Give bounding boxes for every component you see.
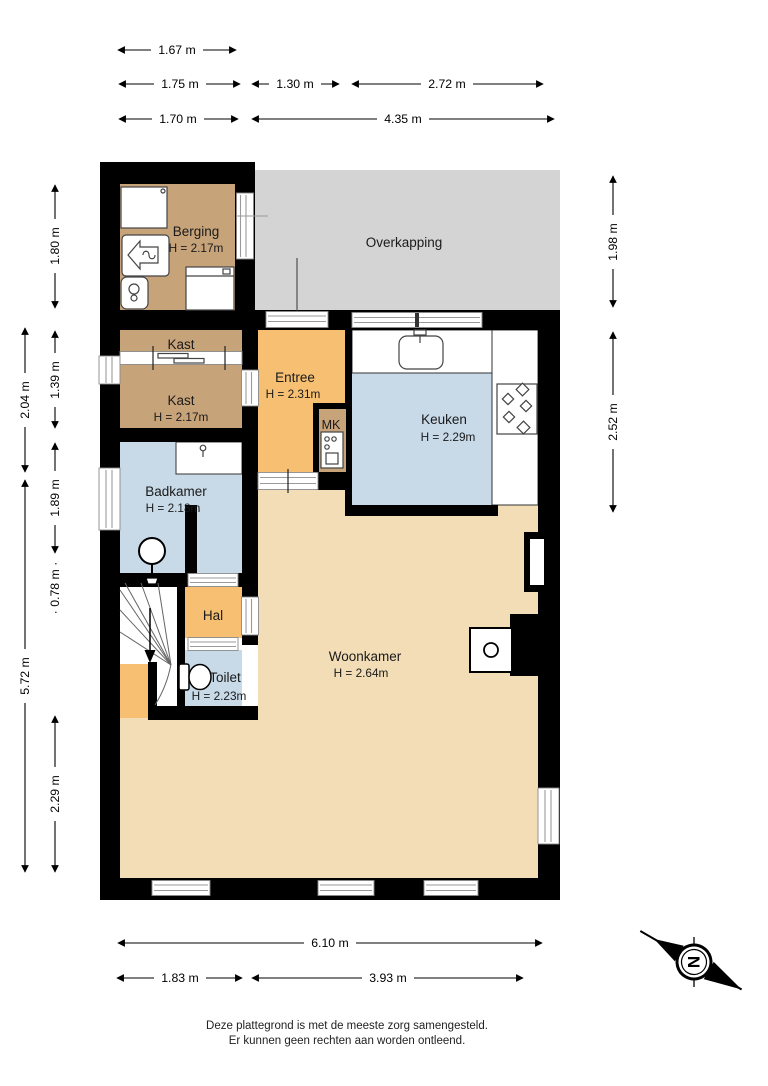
dimension-bottom-3: 3.93 m xyxy=(252,970,523,986)
label-berging: Berging xyxy=(173,224,220,239)
label-keuken: Keuken xyxy=(421,412,467,427)
toilet-icon xyxy=(179,664,211,690)
label-kast-boven: Kast xyxy=(167,337,194,352)
label-woonkamer-height: H = 2.64m xyxy=(334,666,389,680)
heater-unit-icon xyxy=(122,235,169,276)
svg-text:1.80 m: 1.80 m xyxy=(48,227,62,265)
label-berging-height: H = 2.17m xyxy=(169,241,224,255)
dimension-left-3: 1.39 m xyxy=(47,331,63,428)
compass-north-label: N xyxy=(684,956,703,968)
footer-line-1: Deze plattegrond is met de meeste zorg s… xyxy=(206,1020,488,1032)
door-badkamer-hal xyxy=(188,574,238,587)
door-entree-woonkamer xyxy=(258,469,318,493)
window-bottom-3 xyxy=(424,881,478,896)
window-bottom-2 xyxy=(318,881,374,896)
dimension-left-2: 2.04 m xyxy=(17,328,33,472)
svg-text:3.93 m: 3.93 m xyxy=(369,971,407,985)
label-entree: Entree xyxy=(275,370,315,385)
svg-text:2.29 m: 2.29 m xyxy=(48,775,62,813)
label-badkamer: Badkamer xyxy=(145,484,207,499)
dimension-left-7: 2.29 m xyxy=(47,716,63,872)
label-mk: MK xyxy=(322,418,341,432)
svg-text:1.70 m: 1.70 m xyxy=(159,112,197,126)
window-woonkamer-right xyxy=(538,788,559,844)
dimension-right-2: 2.52 m xyxy=(605,332,621,512)
dimension-left-4: 1.89 m xyxy=(47,443,63,553)
wall-niche xyxy=(530,539,544,585)
floorplan-drawing: Berging H = 2.17m Overkapping Kast Kast … xyxy=(0,0,768,1086)
dimension-top-5: 1.70 m xyxy=(119,111,238,127)
window-badkamer-left xyxy=(99,468,120,530)
svg-text:6.10 m: 6.10 m xyxy=(311,936,349,950)
label-kast-height: H = 2.17m xyxy=(154,410,209,424)
svg-text:1.75 m: 1.75 m xyxy=(161,77,199,91)
door-kast-entree xyxy=(242,370,259,406)
dimension-top-1: 1.67 m xyxy=(118,42,236,58)
label-toilet-height: H = 2.23m xyxy=(192,689,247,703)
svg-text:1.89 m: 1.89 m xyxy=(48,479,62,517)
dimension-bottom-2: 1.83 m xyxy=(117,970,242,986)
room-entree-area2 xyxy=(258,403,313,472)
svg-text:1.83 m: 1.83 m xyxy=(161,971,199,985)
dimension-top-3: 1.30 m xyxy=(252,76,339,92)
dimension-right-1: 1.98 m xyxy=(605,176,621,307)
dimension-left-6: 5.72 m xyxy=(17,480,33,872)
footer-disclaimer: Deze plattegrond is met de meeste zorg s… xyxy=(206,1020,488,1047)
washer-icon xyxy=(186,267,234,310)
bathroom-counter xyxy=(176,442,242,474)
dimension-bottom-1: 6.10 m xyxy=(118,935,542,951)
label-kast: Kast xyxy=(167,393,194,408)
dimension-top-6: 4.35 m xyxy=(252,111,554,127)
meter-cabinet-icon xyxy=(321,432,343,468)
label-toilet: Toilet xyxy=(209,670,241,685)
svg-text:2.52 m: 2.52 m xyxy=(606,403,620,441)
svg-text:1.30 m: 1.30 m xyxy=(276,77,314,91)
label-woonkamer: Woonkamer xyxy=(329,649,402,664)
stairs-landing-area xyxy=(120,664,148,718)
label-keuken-height: H = 2.29m xyxy=(421,430,476,444)
window-bottom-1 xyxy=(152,881,210,896)
svg-text:1.98 m: 1.98 m xyxy=(606,223,620,261)
label-overkapping: Overkapping xyxy=(366,235,443,250)
door-hal-toilet xyxy=(188,638,238,651)
door-hal-woonkamer xyxy=(242,597,259,635)
compass-north-icon: N xyxy=(629,912,752,1008)
label-hal: Hal xyxy=(203,608,223,623)
kitchen-sink-icon xyxy=(399,330,443,369)
floorplan-page: Berging H = 2.17m Overkapping Kast Kast … xyxy=(0,0,768,1086)
dimension-left-5: · 0.78 m · xyxy=(47,557,63,619)
room-woonkamer-area xyxy=(258,490,538,878)
room-woonkamer-area-left xyxy=(120,718,258,878)
label-entree-height: H = 2.31m xyxy=(266,387,321,401)
footer-line-2: Er kunnen geen rechten aan worden ontlee… xyxy=(229,1035,466,1047)
svg-text:1.39 m: 1.39 m xyxy=(48,361,62,399)
window-keuken-top xyxy=(352,313,482,328)
fireplace-icon xyxy=(470,628,512,672)
washbasin-unit-icon xyxy=(121,187,167,228)
svg-text:5.72 m: 5.72 m xyxy=(18,657,32,695)
svg-text:2.72 m: 2.72 m xyxy=(428,77,466,91)
dimension-top-2: 1.75 m xyxy=(119,76,240,92)
label-badkamer-height: H = 2.18m xyxy=(146,501,201,515)
dimension-top-4: 2.72 m xyxy=(352,76,543,92)
svg-text:1.67 m: 1.67 m xyxy=(158,43,196,57)
window-kast-left xyxy=(99,356,120,384)
svg-text:2.04 m: 2.04 m xyxy=(18,381,32,419)
svg-text:· 0.78 m ·: · 0.78 m · xyxy=(48,562,62,615)
boiler-icon xyxy=(121,277,148,309)
svg-text:4.35 m: 4.35 m xyxy=(384,112,422,126)
dimension-left-1: 1.80 m xyxy=(47,185,63,308)
